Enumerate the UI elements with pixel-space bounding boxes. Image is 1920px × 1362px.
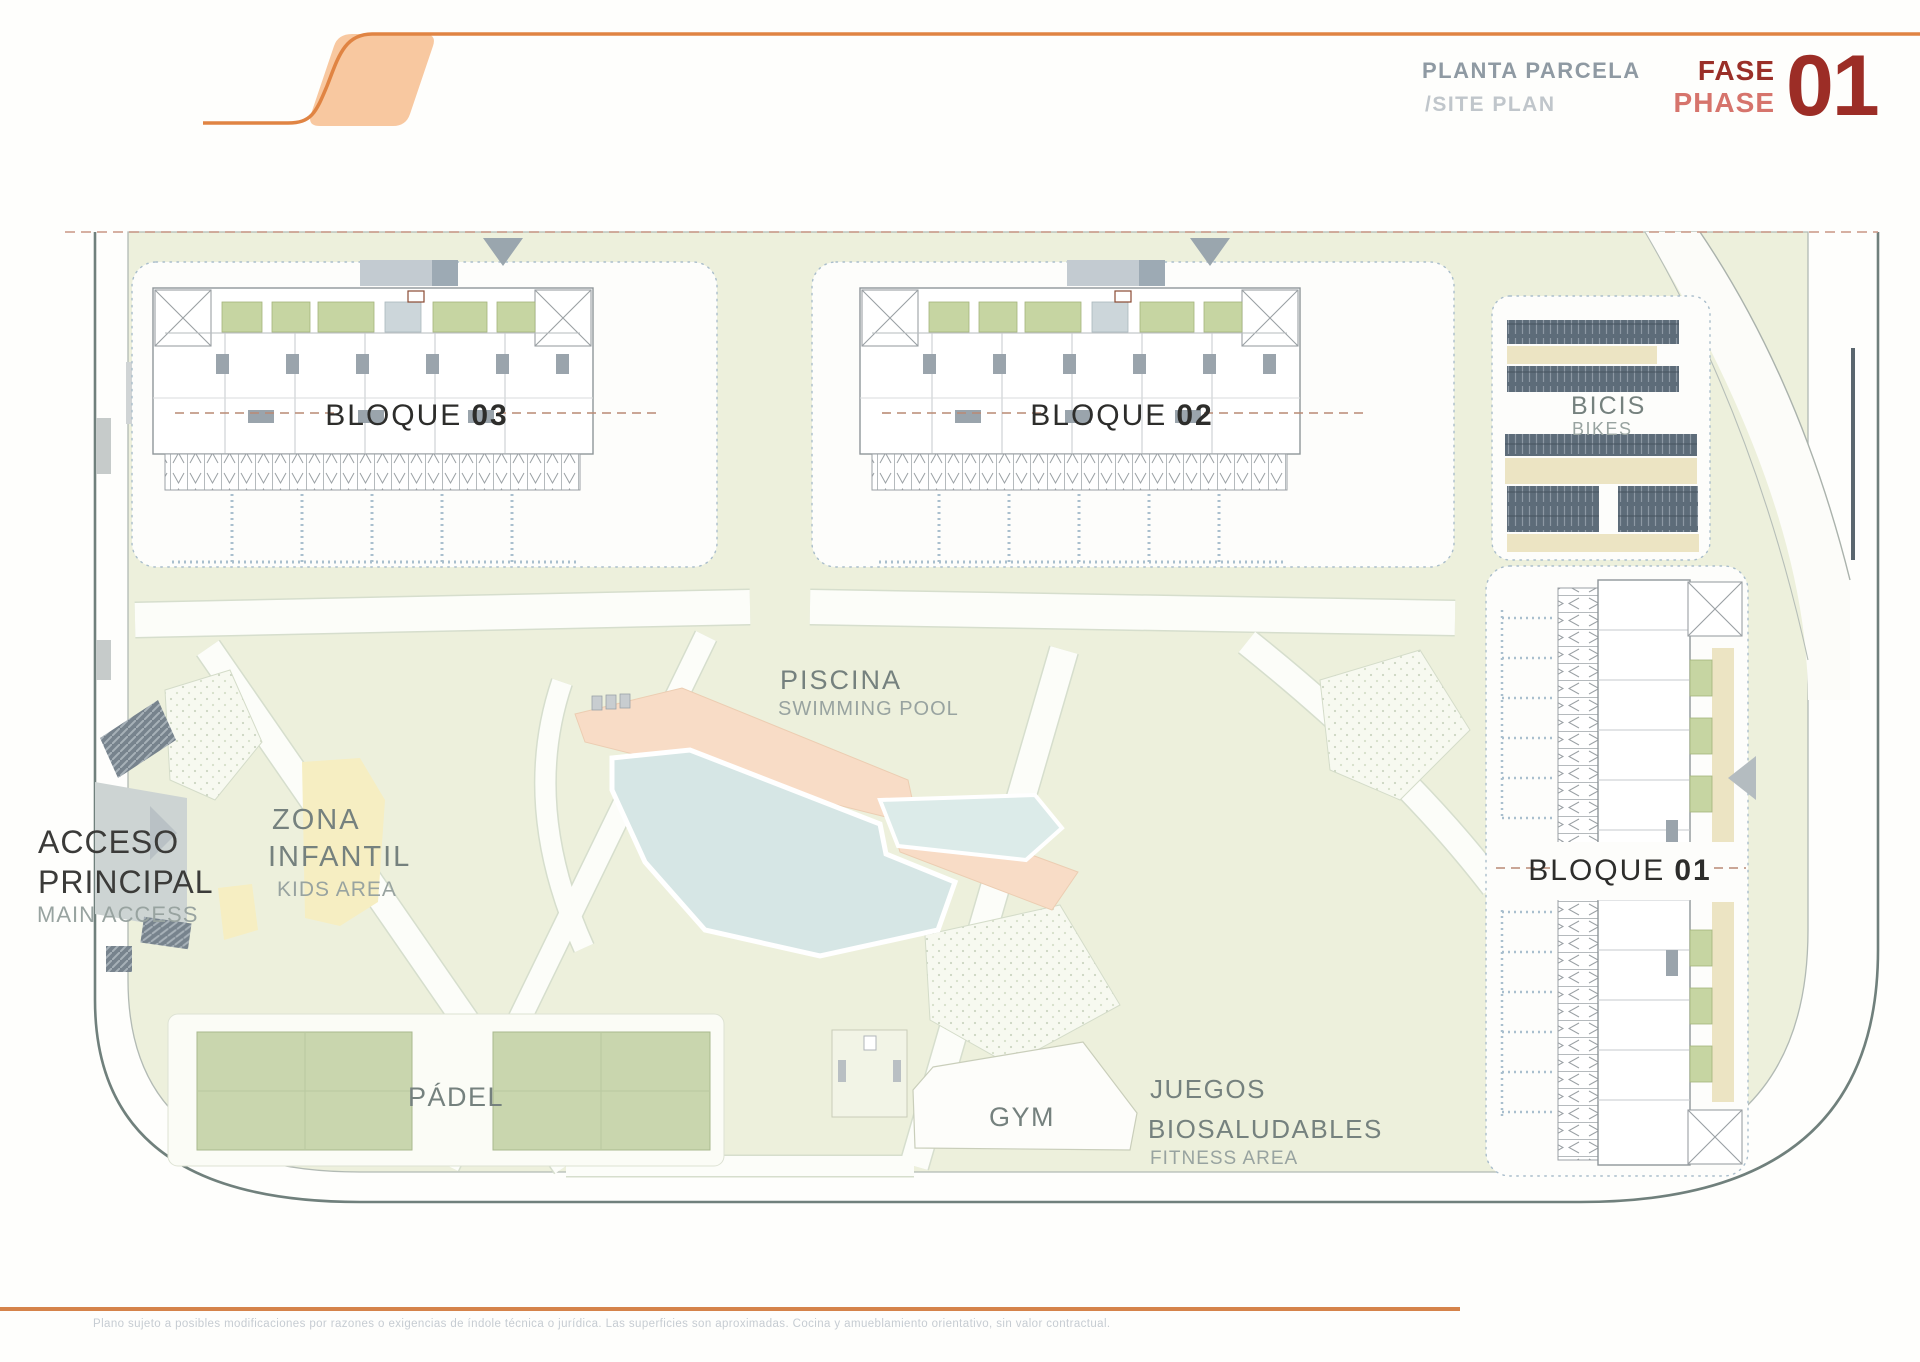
kids-label-es2: INFANTIL: [268, 841, 411, 873]
fitness-label-es1: JUEGOS: [1150, 1074, 1266, 1104]
bloque-03-label: BLOQUE03: [325, 399, 508, 432]
bikes-label-es: BICIS: [1571, 392, 1646, 420]
footer-disclaimer: Plano sujeto a posibles modificaciones p…: [93, 1318, 1111, 1330]
fitness-label-es2: BIOSALUDABLES: [1148, 1114, 1383, 1144]
pool-ladder-icon: [592, 694, 630, 710]
phase-label-block: FASE PHASE: [1620, 55, 1775, 119]
pool-label-en: SWIMMING POOL: [778, 698, 959, 720]
phase-label-es: FASE: [1620, 55, 1775, 87]
gym-label: GYM: [989, 1102, 1055, 1132]
site-plan: BLOQUE03 BLOQUE02 BLOQUE01 BICIS BIKES P…: [0, 0, 1920, 1362]
kids-label-en: KIDS AREA: [277, 878, 397, 901]
access-label-es1: ACCESO: [38, 824, 179, 860]
phase-label-en: PHASE: [1620, 87, 1775, 119]
fitness-equipment-icon: [832, 1030, 907, 1117]
bloque-02-label: BLOQUE02: [1030, 399, 1213, 432]
phase-number: 01: [1786, 46, 1878, 128]
padel-label: PÁDEL: [408, 1082, 504, 1112]
bloque-01-label: BLOQUE01: [1528, 854, 1711, 887]
bikes-label-en: BIKES: [1572, 419, 1633, 439]
kids-label-es1: ZONA: [272, 804, 361, 836]
pool-label-es: PISCINA: [780, 665, 902, 695]
access-label-es2: PRINCIPAL: [38, 864, 214, 900]
access-label-en: MAIN ACCESS: [37, 902, 198, 927]
fitness-label-en: FITNESS AREA: [1150, 1148, 1298, 1169]
footer-accent-line: [0, 1307, 1460, 1311]
